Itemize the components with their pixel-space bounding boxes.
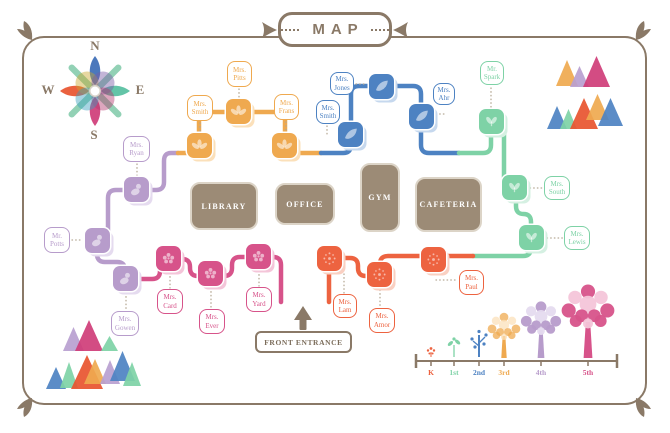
sprout-icon <box>522 228 541 247</box>
classroom-tile-gowen <box>113 266 138 291</box>
teacher-label-potts: Mr.Potts <box>44 227 70 253</box>
building-office: OFFICE <box>275 183 335 225</box>
teacher-name: Lewis <box>568 238 585 246</box>
map-title: MAP <box>306 21 363 38</box>
classroom-tile-jones <box>369 74 394 99</box>
sprout-icon <box>482 112 501 131</box>
teacher-name: Gowen <box>115 324 135 332</box>
corner-leaf-decoration <box>17 21 32 40</box>
teacher-label-lam: Mrs.Lam <box>333 294 357 318</box>
teacher-title: Mrs. <box>437 86 450 94</box>
teacher-label-ahr: Mrs.Ahr <box>433 83 455 105</box>
building-gym: GYM <box>360 163 400 232</box>
person-icon <box>127 180 146 199</box>
corner-leaf-decoration <box>636 398 651 417</box>
teacher-title: Mrs. <box>335 75 348 83</box>
classroom-tile-yard <box>246 244 271 269</box>
compass-east-label: E <box>136 82 145 98</box>
teacher-name: Pitts <box>233 74 245 82</box>
teacher-label-frans: Mrs.Frans <box>274 94 299 120</box>
teacher-name: Smith <box>320 112 337 120</box>
trefoil-icon <box>229 102 248 121</box>
teacher-title: Mrs. <box>550 180 563 188</box>
teacher-name: Smith <box>192 108 209 116</box>
sprout-icon <box>505 178 524 197</box>
teacher-label-paul: Mrs.Paul <box>459 270 484 295</box>
teacher-label-south: Mrs.South <box>544 176 570 200</box>
teacher-title: Mrs. <box>205 313 218 321</box>
leaf-icon <box>341 125 360 144</box>
teacher-label-smith3: Mrs.Smith <box>187 95 213 121</box>
classroom-tile-amor <box>367 262 392 287</box>
corner-leaf-decoration <box>17 398 32 417</box>
classroom-tile-south <box>502 175 527 200</box>
teacher-name: South <box>549 188 565 196</box>
teacher-label-smith2: Mrs.Smith <box>316 100 340 124</box>
teacher-label-amor: Mrs.Amor <box>369 308 395 333</box>
classroom-tile-card <box>156 246 181 271</box>
teacher-title: Mrs. <box>252 291 265 299</box>
front-entrance-sign: FRONT ENTRANCE <box>255 331 352 353</box>
dotted-line-right <box>371 29 389 31</box>
teacher-title: Mr. <box>487 65 497 73</box>
teacher-name: Ahr <box>439 94 450 102</box>
classroom-tile-pitts <box>226 99 251 124</box>
school-map-poster: MAP N E S W LIBRARYOFFICEGYMCAFETERIA Mr… <box>0 0 670 433</box>
person-icon <box>116 269 135 288</box>
classroom-tile-lam <box>317 246 342 271</box>
compass-north-label: N <box>90 38 99 54</box>
teacher-name: Paul <box>465 283 477 291</box>
teacher-label-pitts: Mrs.Pitts <box>227 61 252 87</box>
person-icon <box>88 231 107 250</box>
teacher-label-yard: Mrs.Yard <box>246 287 272 312</box>
legend-label-4th: 4th <box>536 368 546 377</box>
classroom-tile-ryan <box>124 177 149 202</box>
compass-south-label: S <box>90 127 97 143</box>
leaf-icon <box>412 107 431 126</box>
teacher-name: Lam <box>339 306 352 314</box>
classroom-tile-frans <box>272 133 297 158</box>
teacher-name: Yard <box>252 300 265 308</box>
teacher-name: Jones <box>334 84 350 92</box>
compass-west-label: W <box>42 82 55 98</box>
teacher-label-gowen: Mrs.Gowen <box>111 311 139 336</box>
teacher-name: Ever <box>205 322 218 330</box>
teacher-name: Potts <box>50 240 64 248</box>
corner-leaf-decoration <box>636 21 651 40</box>
teacher-name: Ryan <box>129 149 144 157</box>
classroom-tile-smith3 <box>187 133 212 158</box>
teacher-title: Mrs. <box>375 312 388 320</box>
legend-label-K: K <box>428 368 434 377</box>
classroom-tile-paul <box>421 247 446 272</box>
classroom-tile-smith2 <box>338 122 363 147</box>
teacher-label-jones: Mrs.Jones <box>330 72 354 95</box>
teacher-title: Mrs. <box>570 230 583 238</box>
teacher-title: Mrs. <box>118 315 131 323</box>
trefoil-icon <box>275 136 294 155</box>
teacher-label-card: Mrs.Card <box>157 289 183 314</box>
teacher-label-ever: Mrs.Ever <box>199 309 225 334</box>
dotted-line-left <box>281 29 299 31</box>
teacher-label-spark: Mr.Spark <box>480 61 504 85</box>
teacher-title: Mrs. <box>280 99 293 107</box>
leaf-icon <box>372 77 391 96</box>
burst-icon <box>370 265 389 284</box>
flower-icon <box>249 247 268 266</box>
teacher-name: Amor <box>374 321 390 329</box>
teacher-label-ryan: Mrs.Ryan <box>123 136 150 162</box>
legend-label-3rd: 3rd <box>498 368 509 377</box>
teacher-title: Mrs. <box>233 66 246 74</box>
teacher-title: Mrs. <box>338 298 351 306</box>
teacher-name: Spark <box>484 73 500 81</box>
burst-icon <box>424 250 443 269</box>
building-library: LIBRARY <box>190 182 258 230</box>
teacher-label-lewis: Mrs.Lewis <box>564 226 590 250</box>
legend-label-5th: 5th <box>583 368 593 377</box>
classroom-tile-ever <box>198 261 223 286</box>
trefoil-icon <box>190 136 209 155</box>
legend-label-2nd: 2nd <box>473 368 485 377</box>
building-cafeteria: CAFETERIA <box>415 177 482 232</box>
teacher-title: Mr. <box>52 232 62 240</box>
teacher-title: Mrs. <box>321 104 334 112</box>
map-title-badge: MAP <box>278 12 392 47</box>
teacher-title: Mrs. <box>193 100 206 108</box>
classroom-tile-potts <box>85 228 110 253</box>
legend-label-1st: 1st <box>449 368 458 377</box>
teacher-name: Frans <box>279 107 295 115</box>
classroom-tile-lewis <box>519 225 544 250</box>
teacher-title: Mrs. <box>163 293 176 301</box>
flower-icon <box>201 264 220 283</box>
burst-icon <box>320 249 339 268</box>
teacher-title: Mrs. <box>130 141 143 149</box>
classroom-tile-spark <box>479 109 504 134</box>
teacher-name: Card <box>163 302 177 310</box>
teacher-title: Mrs. <box>465 274 478 282</box>
flower-icon <box>159 249 178 268</box>
classroom-tile-ahr <box>409 104 434 129</box>
